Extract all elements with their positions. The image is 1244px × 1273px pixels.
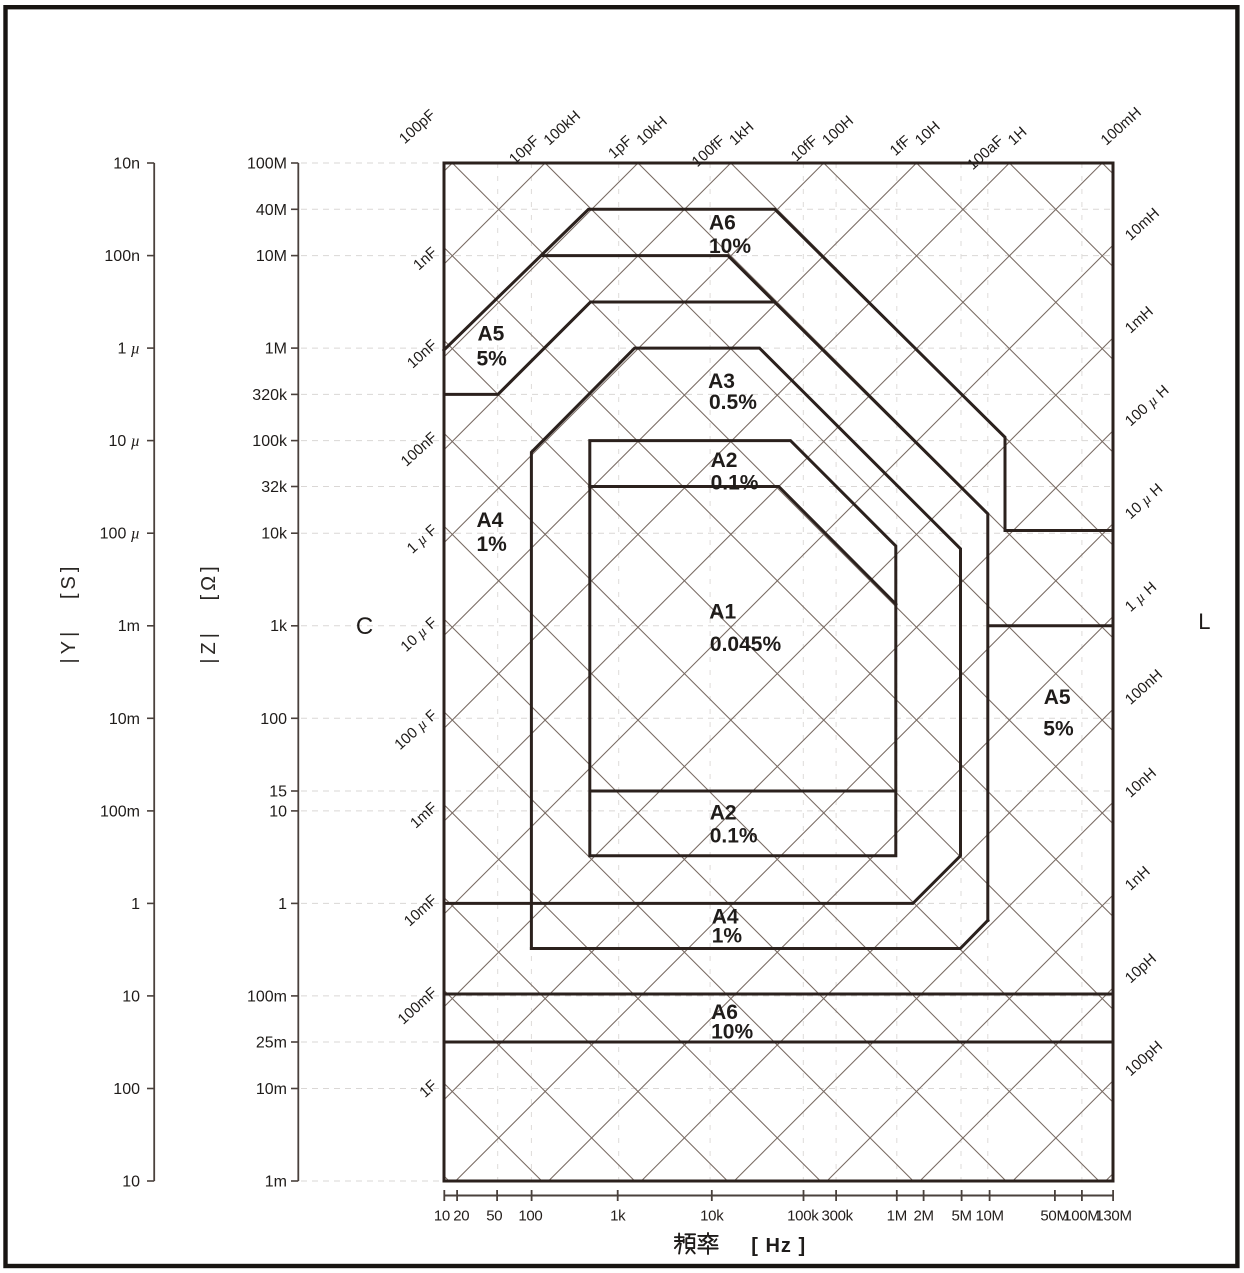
svg-text:10: 10 bbox=[434, 1208, 450, 1225]
svg-text:1 µ: 1 µ bbox=[117, 341, 140, 358]
svg-text:1%: 1% bbox=[477, 533, 508, 556]
svg-text:1: 1 bbox=[278, 896, 287, 913]
svg-text:[ Hz ]: [ Hz ] bbox=[751, 1235, 806, 1257]
svg-text:15: 15 bbox=[269, 784, 287, 801]
svg-text:1: 1 bbox=[131, 896, 140, 913]
svg-text:100k: 100k bbox=[252, 433, 288, 450]
svg-text:10: 10 bbox=[122, 1174, 140, 1191]
svg-text:C: C bbox=[356, 613, 373, 640]
svg-text:100: 100 bbox=[260, 711, 287, 728]
svg-text:1%: 1% bbox=[712, 924, 743, 947]
svg-text:10m: 10m bbox=[256, 1081, 287, 1098]
svg-text:10: 10 bbox=[269, 803, 287, 820]
svg-text:A3: A3 bbox=[708, 370, 735, 393]
svg-text:1k: 1k bbox=[610, 1208, 626, 1225]
svg-text:10M: 10M bbox=[256, 248, 287, 265]
svg-text:10 µ: 10 µ bbox=[109, 433, 140, 450]
svg-text:10k: 10k bbox=[261, 526, 288, 543]
svg-text:A5: A5 bbox=[478, 323, 505, 346]
svg-text:2M: 2M bbox=[913, 1208, 933, 1225]
svg-text:10M: 10M bbox=[975, 1208, 1003, 1225]
svg-text:10%: 10% bbox=[709, 235, 751, 258]
svg-text:L: L bbox=[1198, 609, 1210, 634]
svg-text:100M: 100M bbox=[247, 156, 287, 173]
svg-text:100n: 100n bbox=[104, 248, 140, 265]
svg-text:|Y| [S]: |Y| [S] bbox=[58, 563, 80, 664]
svg-text:|Z| [Ω]: |Z| [Ω] bbox=[198, 562, 220, 663]
svg-text:40M: 40M bbox=[256, 202, 287, 219]
svg-text:0.1%: 0.1% bbox=[710, 825, 758, 848]
svg-text:A6: A6 bbox=[709, 211, 736, 234]
svg-text:A5: A5 bbox=[1044, 686, 1071, 709]
svg-text:10%: 10% bbox=[711, 1020, 753, 1043]
svg-text:10m: 10m bbox=[109, 711, 140, 728]
svg-text:A2: A2 bbox=[711, 449, 738, 472]
svg-text:5%: 5% bbox=[1043, 718, 1074, 741]
svg-text:1M: 1M bbox=[887, 1208, 907, 1225]
svg-text:A1: A1 bbox=[709, 601, 736, 624]
svg-text:10: 10 bbox=[122, 988, 140, 1005]
svg-text:10n: 10n bbox=[113, 156, 140, 173]
svg-text:A4: A4 bbox=[477, 509, 504, 532]
svg-text:1M: 1M bbox=[265, 341, 287, 358]
svg-text:0.5%: 0.5% bbox=[709, 391, 757, 414]
svg-text:100: 100 bbox=[518, 1208, 542, 1225]
svg-text:100M: 100M bbox=[1063, 1208, 1099, 1225]
svg-text:5%: 5% bbox=[477, 348, 508, 371]
svg-text:A2: A2 bbox=[710, 802, 737, 825]
svg-text:10k: 10k bbox=[700, 1208, 724, 1225]
svg-text:100m: 100m bbox=[247, 988, 287, 1005]
svg-text:0.045%: 0.045% bbox=[710, 633, 782, 656]
svg-text:5M: 5M bbox=[951, 1208, 971, 1225]
svg-text:20: 20 bbox=[453, 1208, 469, 1225]
svg-text:50: 50 bbox=[486, 1208, 502, 1225]
svg-text:100k: 100k bbox=[787, 1208, 819, 1225]
svg-text:100m: 100m bbox=[100, 803, 140, 820]
svg-text:100 µ: 100 µ bbox=[100, 526, 140, 543]
svg-text:0.1%: 0.1% bbox=[711, 472, 759, 495]
svg-text:300k: 300k bbox=[822, 1208, 854, 1225]
svg-text:1m: 1m bbox=[265, 1174, 287, 1191]
svg-text:32k: 32k bbox=[261, 479, 288, 496]
svg-text:1k: 1k bbox=[270, 618, 288, 635]
svg-text:100: 100 bbox=[113, 1081, 140, 1098]
svg-text:320k: 320k bbox=[252, 387, 288, 404]
svg-text:130M: 130M bbox=[1095, 1208, 1131, 1225]
svg-text:25m: 25m bbox=[256, 1035, 287, 1052]
svg-text:1m: 1m bbox=[118, 618, 140, 635]
